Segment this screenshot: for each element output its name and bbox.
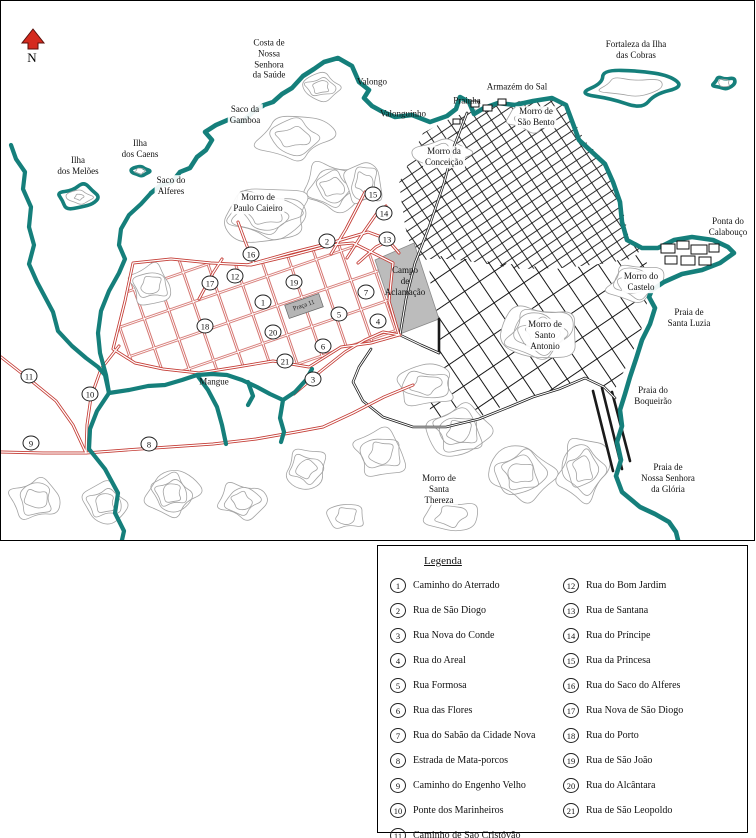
legend-item-15: 15Rua da Princesa [563,653,683,668]
legend-label-5: Rua Formosa [413,680,467,691]
legend-item-14: 14Rua do Príncipe [563,628,683,643]
legend-label-18: Rua do Porto [586,730,639,741]
legend-label-7: Rua do Sabão da Cidade Nova [413,730,535,741]
legend-item-16: 16Rua do Saco do Alferes [563,678,683,693]
legend-number-18: 18 [563,728,579,743]
legend-label-16: Rua do Saco do Alferes [586,680,680,691]
map-marker-4: 4 [370,314,387,329]
map-drawing [1,1,754,540]
legend-number-8: 8 [390,753,406,768]
legend-label-6: Rua das Flores [413,705,472,716]
legend-label-21: Rua de São Leopoldo [586,805,672,816]
legend-number-12: 12 [563,578,579,593]
compass-north-label: N [27,50,36,66]
map-marker-14: 14 [376,206,393,221]
legend-label-17: Rua Nova de São Diogo [586,705,683,716]
map-marker-3: 3 [305,372,322,387]
legend-number-6: 6 [390,703,406,718]
legend-item-8: 8Estrada de Mata-porcos [390,753,535,768]
legend-column-2: 12Rua do Bom Jardim13Rua de Santana14Rua… [563,578,683,828]
legend-number-5: 5 [390,678,406,693]
map-marker-21: 21 [277,354,294,369]
map-marker-2: 2 [319,234,336,249]
legend-number-9: 9 [390,778,406,793]
legend-label-19: Rua de São João [586,755,652,766]
legend-label-13: Rua de Santana [586,605,648,616]
map-marker-15: 15 [365,187,382,202]
legend-label-4: Rua do Areal [413,655,466,666]
map-marker-20: 20 [265,325,282,340]
legend-label-14: Rua do Príncipe [586,630,650,641]
legend-number-10: 10 [390,803,406,818]
map-marker-18: 18 [197,319,214,334]
legend-label-2: Rua de São Diogo [413,605,486,616]
legend-item-13: 13Rua de Santana [563,603,683,618]
legend-label-12: Rua do Bom Jardim [586,580,666,591]
legend-item-11: 11Caminho de Sao Cristóvão [390,828,535,838]
map-canvas: Costa de Nossa Senhora da SaúdeValongoVa… [0,0,755,541]
legend-number-14: 14 [563,628,579,643]
legend-item-9: 9Caminho do Engenho Velho [390,778,535,793]
legend-item-20: 20Rua do Alcântara [563,778,683,793]
map-marker-11: 11 [21,369,38,384]
map-marker-10: 10 [82,387,99,402]
legend-number-19: 19 [563,753,579,768]
map-marker-8: 8 [141,437,158,452]
map-marker-19: 19 [286,275,303,290]
legend-number-11: 11 [390,828,406,838]
legend-label-1: Caminho do Aterrado [413,580,500,591]
map-marker-1: 1 [255,295,272,310]
legend-label-20: Rua do Alcântara [586,780,655,791]
legend-number-15: 15 [563,653,579,668]
legend-item-12: 12Rua do Bom Jardim [563,578,683,593]
legend-number-16: 16 [563,678,579,693]
legend-item-4: 4Rua do Areal [390,653,535,668]
legend-number-2: 2 [390,603,406,618]
legend-label-8: Estrada de Mata-porcos [413,755,508,766]
legend-panel: Legenda 1Caminho do Aterrado2Rua de São … [377,545,748,833]
legend-item-18: 18Rua do Porto [563,728,683,743]
legend-number-17: 17 [563,703,579,718]
legend-number-21: 21 [563,803,579,818]
legend-item-10: 10Ponte dos Marinheiros [390,803,535,818]
map-marker-5: 5 [331,307,348,322]
legend-label-10: Ponte dos Marinheiros [413,805,504,816]
legend-item-17: 17Rua Nova de São Diogo [563,703,683,718]
historical-map-page: Costa de Nossa Senhora da SaúdeValongoVa… [0,0,756,838]
legend-item-6: 6Rua das Flores [390,703,535,718]
legend-item-7: 7Rua do Sabão da Cidade Nova [390,728,535,743]
map-marker-6: 6 [315,339,332,354]
map-marker-13: 13 [379,232,396,247]
legend-number-7: 7 [390,728,406,743]
compass-north-arrow [22,29,44,49]
legend-number-13: 13 [563,603,579,618]
legend-item-3: 3Rua Nova do Conde [390,628,535,643]
map-marker-9: 9 [23,436,40,451]
legend-label-9: Caminho do Engenho Velho [413,780,526,791]
legend-item-2: 2Rua de São Diogo [390,603,535,618]
legend-item-5: 5Rua Formosa [390,678,535,693]
map-marker-12: 12 [227,269,244,284]
legend-column-1: 1Caminho do Aterrado2Rua de São Diogo3Ru… [390,578,535,838]
legend-label-3: Rua Nova do Conde [413,630,494,641]
legend-item-19: 19Rua de São João [563,753,683,768]
map-marker-7: 7 [358,285,375,300]
legend-label-11: Caminho de Sao Cristóvão [413,830,521,838]
legend-number-20: 20 [563,778,579,793]
legend-number-1: 1 [390,578,406,593]
legend-number-3: 3 [390,628,406,643]
legend-number-4: 4 [390,653,406,668]
legend-item-1: 1Caminho do Aterrado [390,578,535,593]
legend-title: Legenda [424,555,462,567]
map-marker-16: 16 [243,247,260,262]
map-marker-17: 17 [202,276,219,291]
legend-item-21: 21Rua de São Leopoldo [563,803,683,818]
legend-label-15: Rua da Princesa [586,655,650,666]
